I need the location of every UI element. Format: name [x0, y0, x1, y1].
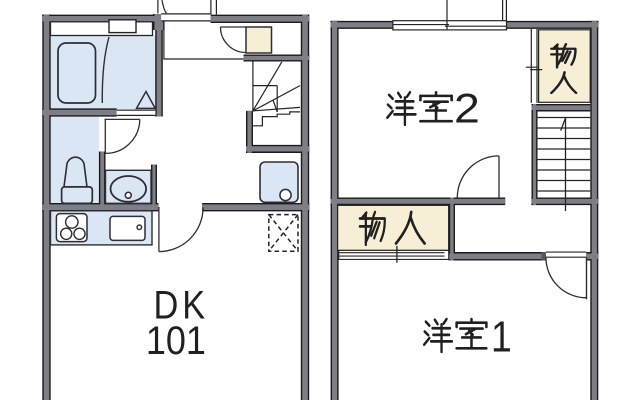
svg-text:2: 2 [454, 86, 480, 132]
svg-text:1: 1 [491, 312, 512, 362]
svg-text:101: 101 [146, 319, 206, 363]
